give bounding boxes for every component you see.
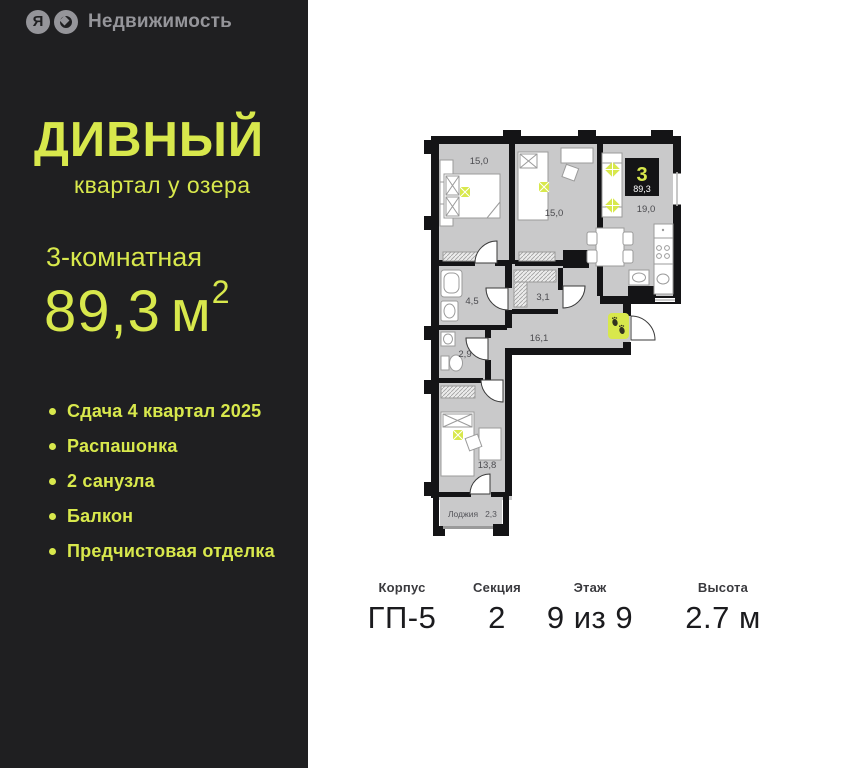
bullet-icon — [49, 478, 56, 485]
room-label: 19,0 — [637, 204, 656, 215]
feature-label: Распашонка — [67, 435, 178, 457]
list-item: Распашонка — [49, 435, 275, 457]
info-value: 2 — [473, 600, 521, 636]
apartment-area: 89,3м2 — [44, 274, 231, 345]
list-item: Сдача 4 квартал 2025 — [49, 400, 275, 422]
project-tagline: квартал у озера — [74, 172, 251, 199]
feature-list: Сдача 4 квартал 2025 Распашонка 2 санузл… — [49, 400, 275, 575]
chair — [587, 232, 597, 245]
dining-table — [596, 228, 624, 266]
room-label: 15,0 — [470, 156, 489, 167]
room-label: 13,8 — [478, 460, 497, 471]
loggia-window — [443, 526, 493, 529]
bullet-icon — [49, 443, 56, 450]
area-value: 89,3 — [44, 279, 161, 344]
plan-badge: 3 89,3 — [625, 158, 659, 196]
bullet-icon — [49, 548, 56, 555]
room-label: 4,5 — [465, 296, 478, 307]
chair — [587, 250, 597, 263]
info-label: Корпус — [368, 580, 437, 595]
bullet-icon — [49, 408, 56, 415]
floor-plan: 3 89,3 15,0 15,0 19,0 4,5 3,1 2,9 16,1 1… — [415, 128, 745, 563]
info-section: Секция 2 — [473, 580, 521, 636]
room-label: 2,3 — [485, 509, 497, 519]
feature-label: Балкон — [67, 505, 133, 527]
info-value: 9 из 9 — [547, 600, 633, 636]
info-label: Высота — [685, 580, 761, 595]
project-wordmark: ДИВНЫЙ — [34, 112, 264, 168]
entry-door — [631, 316, 655, 340]
yandex-logo-icon: Я — [26, 10, 50, 34]
area-unit: м — [171, 279, 212, 344]
list-item: 2 санузла — [49, 470, 275, 492]
list-item: Балкон — [49, 505, 275, 527]
room-label: Лоджия — [448, 509, 479, 519]
list-item: Предчистовая отделка — [49, 540, 275, 562]
info-floor: Этаж 9 из 9 — [547, 580, 633, 636]
room-label: 3,1 — [536, 292, 549, 303]
feature-label: Сдача 4 квартал 2025 — [67, 400, 261, 422]
info-value: ГП-5 — [368, 600, 437, 636]
realty-logo-notch — [60, 15, 70, 25]
radiator — [443, 252, 479, 261]
entry-badge — [608, 313, 629, 339]
area-power: 2 — [212, 274, 231, 310]
chair — [623, 250, 633, 263]
yandex-realty-logo: Я Недвижимость — [26, 9, 232, 34]
realty-logo-icon — [54, 10, 78, 34]
room-label: 2,9 — [458, 349, 471, 360]
floor-plan-drawing: 3 89,3 15,0 15,0 19,0 4,5 3,1 2,9 16,1 1… — [415, 128, 745, 558]
feature-label: 2 санузла — [67, 470, 155, 492]
info-value: 2.7 м — [685, 600, 761, 636]
desk — [479, 428, 501, 460]
desk — [561, 148, 593, 163]
badge-rooms: 3 — [636, 164, 647, 186]
feature-label: Предчистовая отделка — [67, 540, 275, 562]
yandex-letter: Я — [33, 13, 44, 30]
info-label: Этаж — [547, 580, 633, 595]
room-label: 15,0 — [545, 208, 564, 219]
chair — [623, 232, 633, 245]
toilet-tank — [441, 356, 449, 370]
info-label: Секция — [473, 580, 521, 595]
left-info-panel: Я Недвижимость ДИВНЫЙ квартал у озера 3-… — [0, 0, 308, 768]
brand-name: Недвижимость — [88, 11, 232, 33]
wardrobe — [514, 270, 556, 282]
wardrobe — [514, 282, 527, 307]
apartment-type-title: 3-комнатная — [46, 242, 202, 273]
info-building: Корпус ГП-5 — [368, 580, 437, 636]
info-ceiling-height: Высота 2.7 м — [685, 580, 761, 636]
bullet-icon — [49, 513, 56, 520]
badge-area: 89,3 — [633, 184, 651, 194]
room-label: 16,1 — [530, 333, 549, 344]
wardrobe — [441, 386, 475, 398]
radiator — [519, 252, 555, 261]
